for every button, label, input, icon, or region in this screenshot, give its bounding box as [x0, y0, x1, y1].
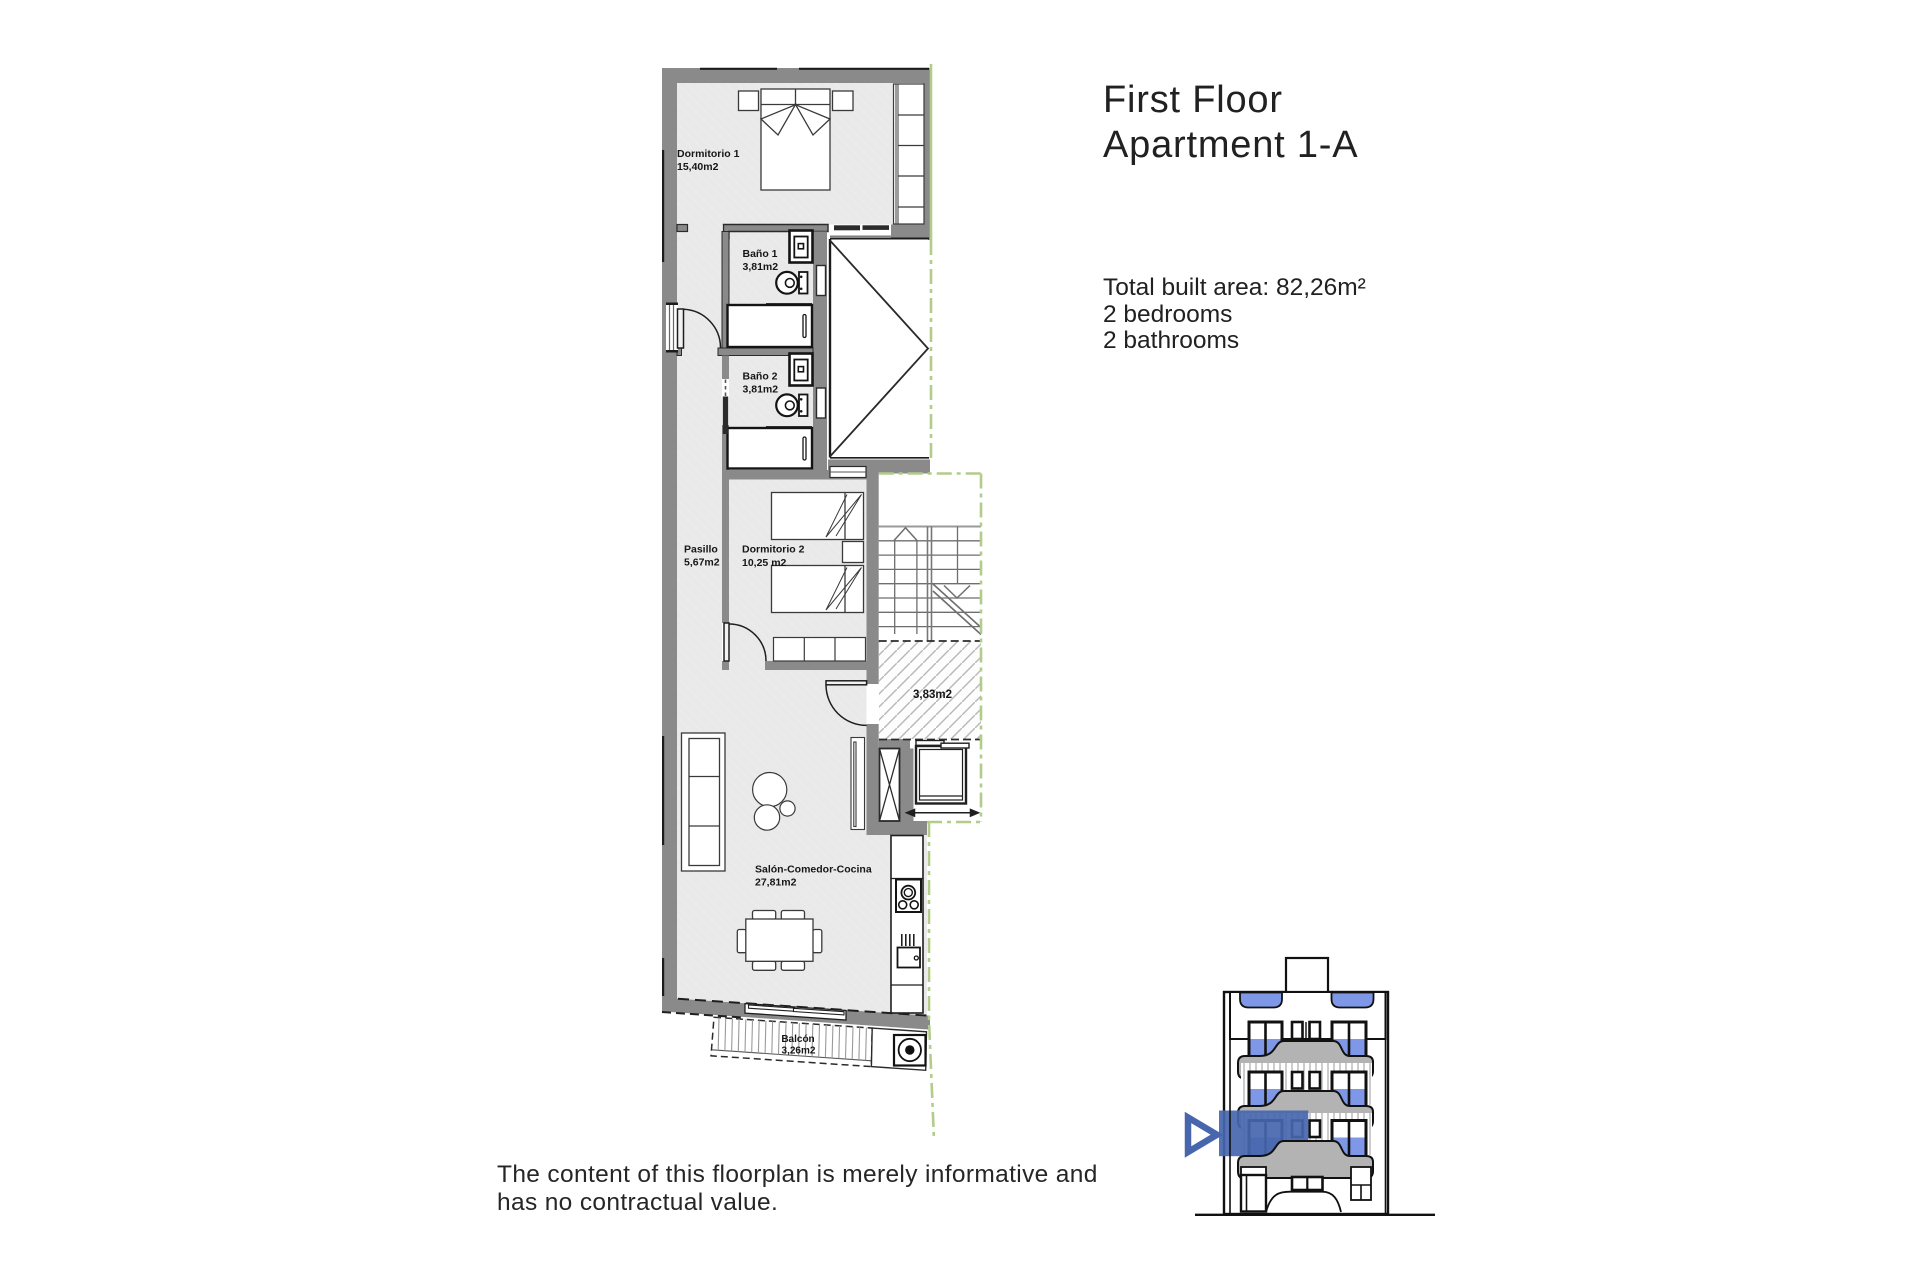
svg-text:3,81m2: 3,81m2	[743, 384, 779, 396]
svg-text:15,40m2: 15,40m2	[677, 161, 719, 173]
svg-text:27,81m2: 27,81m2	[755, 877, 797, 889]
svg-text:Balcón: Balcón	[781, 1034, 814, 1045]
svg-text:3,83m2: 3,83m2	[913, 689, 952, 701]
svg-text:3,81m2: 3,81m2	[743, 261, 779, 273]
svg-text:10,25 m2: 10,25 m2	[742, 557, 787, 569]
svg-text:Dormitorio 2: Dormitorio 2	[742, 544, 805, 556]
svg-text:Pasillo: Pasillo	[684, 544, 718, 556]
svg-text:5,67m2: 5,67m2	[684, 557, 720, 569]
svg-text:3,26m2: 3,26m2	[782, 1046, 816, 1057]
svg-text:Dormitorio 1: Dormitorio 1	[677, 148, 740, 160]
svg-text:Baño 2: Baño 2	[743, 371, 778, 383]
svg-text:Baño 1: Baño 1	[743, 248, 778, 260]
svg-text:Salón-Comedor-Cocina: Salón-Comedor-Cocina	[755, 864, 872, 876]
